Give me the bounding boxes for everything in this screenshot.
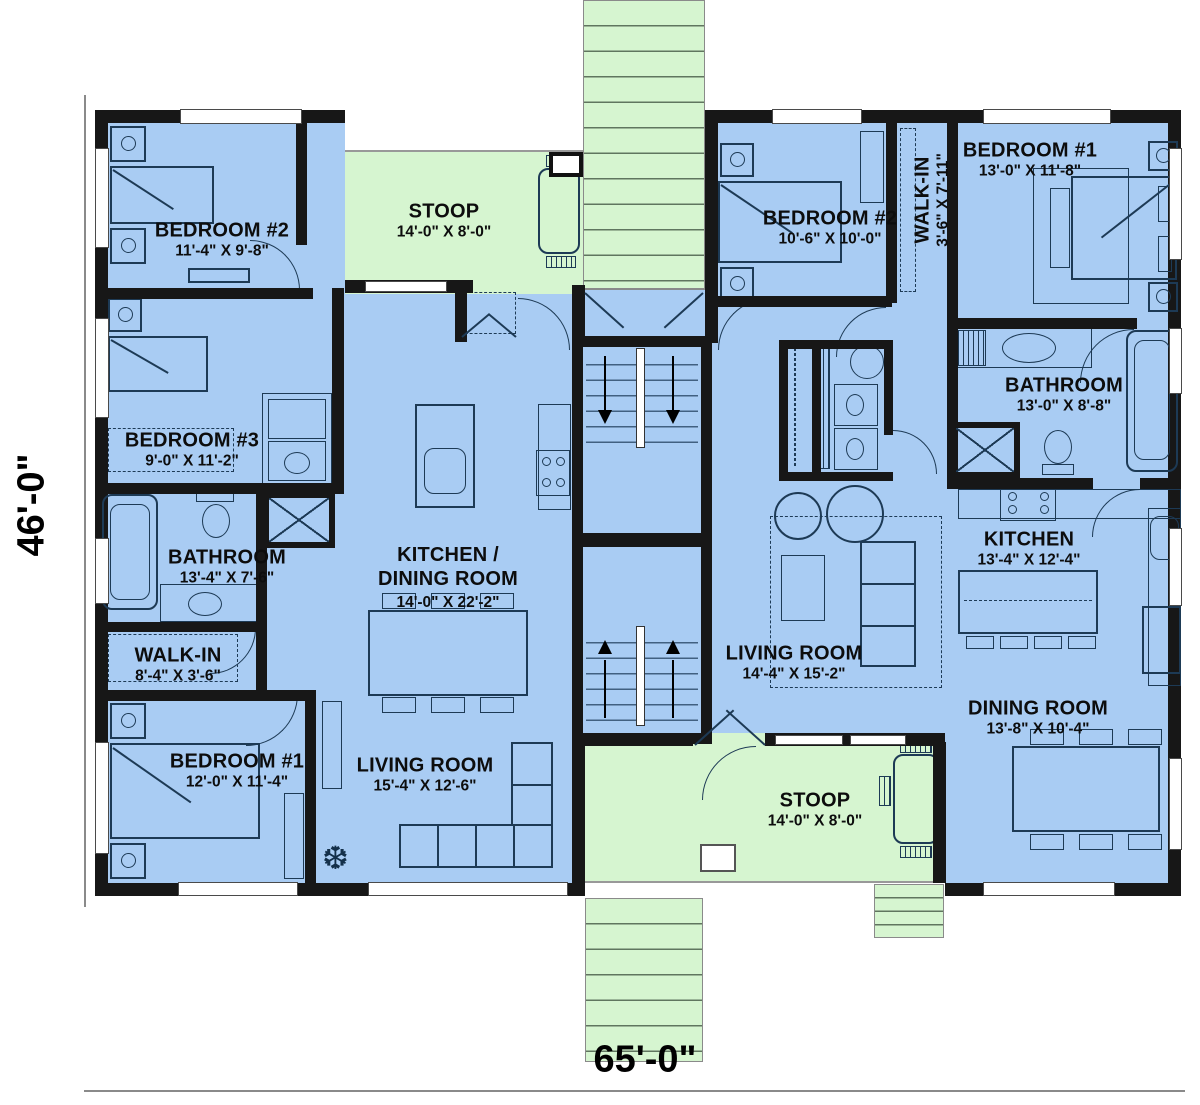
range [1000, 487, 1056, 521]
wall [1140, 478, 1181, 489]
dryer-door [846, 438, 864, 460]
wall [779, 340, 788, 481]
bench [284, 793, 304, 879]
bathtub-inner [110, 504, 150, 600]
washer-door [846, 394, 864, 416]
chair [1079, 834, 1113, 850]
bathroom-sink [188, 592, 222, 616]
room-label-right-bathroom: BATHROOM 13'-0" X 8'-8" [1005, 374, 1123, 417]
range [536, 450, 570, 496]
window [368, 882, 568, 896]
plant-icon: ❆ [322, 842, 349, 874]
chair [1128, 834, 1162, 850]
dining-table [1012, 746, 1160, 832]
lamp [121, 713, 136, 728]
window [180, 109, 302, 124]
window [983, 882, 1115, 896]
window [772, 109, 862, 124]
stair-arrow [604, 660, 606, 718]
room-label-right-kitchen: KITCHEN 13'-4" X 12'-4" [977, 528, 1080, 571]
window [178, 882, 298, 896]
lamp [730, 152, 745, 167]
lamp [118, 307, 133, 322]
round-chair [774, 492, 822, 540]
stair-up-arrow [666, 640, 680, 654]
stair-arrow [672, 356, 674, 414]
dresser [188, 268, 250, 283]
stoop-bottom [585, 733, 945, 883]
room-label-left-bedroom1: BEDROOM #1 12'-0" X 11'-4" [170, 750, 304, 793]
dining-table [368, 610, 528, 696]
chair [382, 697, 416, 713]
window [1169, 328, 1182, 394]
room-label-left-living: LIVING ROOM 15'-4" X 12'-6" [357, 754, 494, 797]
wall [108, 288, 313, 299]
patio-chair [900, 846, 932, 858]
window [95, 742, 109, 854]
wall [332, 288, 344, 494]
lamp [1156, 289, 1171, 304]
room-label-right-walkin: WALK-IN 3'-6" X 7'-11" [911, 153, 954, 247]
wall [950, 318, 1137, 329]
linen-closet [950, 422, 1020, 478]
wall [705, 110, 718, 343]
burner [542, 457, 551, 466]
entry-stairs-top [583, 0, 705, 290]
patio-table [538, 168, 580, 254]
burner [1008, 492, 1017, 501]
room-label-stoop-bottom: STOOP 14'-0" X 8'-0" [768, 789, 862, 832]
stair-down-arrow [598, 410, 612, 424]
sofa [860, 541, 916, 667]
wall-opening [345, 108, 585, 151]
stool [1034, 636, 1062, 649]
island-sink [424, 448, 466, 494]
toilet-bowl [1044, 430, 1072, 464]
stool [1068, 636, 1096, 649]
bathtub-inner [1134, 340, 1170, 460]
sofa [399, 824, 553, 868]
chair [1128, 729, 1162, 745]
window [983, 109, 1111, 124]
room-label-right-bedroom2: BEDROOM #2 10'-6" X 10'-0" [763, 207, 897, 250]
wall [296, 123, 307, 245]
doormat [700, 844, 736, 872]
burner [542, 478, 551, 487]
sofa-chaise [511, 742, 553, 826]
stair-up-arrow [598, 640, 612, 654]
island-overhang-line [964, 600, 1092, 601]
window [1169, 758, 1182, 850]
refrigerator [1142, 606, 1181, 674]
bathroom-shelves [958, 330, 986, 366]
stair-arrow [672, 660, 674, 718]
toilet-bowl [202, 504, 230, 538]
side-steps-bottom [874, 884, 944, 938]
wall [572, 742, 585, 883]
stair-rail [636, 626, 645, 726]
burner [556, 457, 565, 466]
closet-rod [794, 348, 796, 466]
console-table [322, 701, 342, 789]
kitchen-island [958, 570, 1098, 634]
window [1169, 528, 1182, 606]
wall [712, 296, 892, 307]
stair-rail [636, 348, 645, 448]
room-label-left-bathroom: BATHROOM 13'-4" X 7'-6" [168, 546, 286, 589]
wall [779, 340, 893, 349]
window [95, 538, 109, 604]
bench [1050, 188, 1070, 268]
dimension-line-horizontal [84, 1090, 1185, 1092]
overall-width-dimension: 65'-0" [593, 1039, 696, 1082]
laundry-sink [284, 452, 310, 474]
toilet-tank [1042, 464, 1074, 475]
bed [110, 166, 214, 224]
stool [966, 636, 994, 649]
wall [305, 690, 316, 883]
room-label-left-bedroom3: BEDROOM #3 9'-0" X 11'-2" [125, 429, 259, 472]
wall [812, 340, 821, 481]
entry-threshold [583, 288, 705, 290]
lamp [121, 136, 136, 151]
wall [108, 690, 316, 701]
dimension-line-vertical [84, 95, 86, 907]
bathroom-sink [1002, 333, 1056, 363]
stool [1000, 636, 1028, 649]
room-label-left-walkin: WALK-IN 8'-4" X 3'-6" [135, 644, 222, 687]
window [775, 735, 843, 745]
patio-chair [879, 776, 891, 806]
chair [480, 697, 514, 713]
floor-plan: 46'-0" 65'-0" [0, 0, 1200, 1105]
room-label-stoop-top: STOOP 14'-0" X 8'-0" [397, 200, 491, 243]
stair-arrow [604, 356, 606, 414]
window [365, 281, 447, 292]
wall [884, 340, 893, 435]
overall-height-dimension: 46'-0" [11, 453, 54, 556]
burner [1040, 492, 1049, 501]
window [850, 735, 906, 745]
burner [556, 478, 565, 487]
stair-down-arrow [666, 410, 680, 424]
room-label-right-living: LIVING ROOM 14'-4" X 15'-2" [726, 642, 863, 685]
entry-stairs-bottom [585, 898, 703, 1062]
armchair [826, 485, 884, 543]
burner [1040, 505, 1049, 514]
bed [108, 336, 208, 392]
window [1169, 148, 1182, 260]
lamp [730, 276, 745, 291]
room-label-right-bedroom1: BEDROOM #1 13'-0" X 11'-8" [963, 139, 1097, 182]
lamp [121, 238, 136, 253]
burner [1008, 505, 1017, 514]
chair [431, 697, 465, 713]
dresser [860, 131, 884, 203]
coffee-table [781, 555, 825, 621]
wall [947, 478, 1093, 489]
room-label-left-bedroom2: BEDROOM #2 11'-4" X 9'-8" [155, 219, 289, 262]
wall [933, 742, 946, 883]
window [95, 148, 109, 248]
window [95, 318, 109, 418]
chair [1030, 834, 1064, 850]
room-label-left-kitchen-dining: KITCHEN / DINING ROOM 14'-0" X 22'-2" [378, 543, 518, 613]
doormat [549, 152, 583, 177]
lamp [121, 853, 136, 868]
wall [779, 472, 893, 481]
room-label-right-dining: DINING ROOM 13'-8" X 10'-4" [968, 697, 1108, 740]
wall [108, 622, 267, 632]
patio-chair [546, 256, 576, 268]
linen-closet [263, 492, 335, 548]
washer [268, 399, 326, 439]
